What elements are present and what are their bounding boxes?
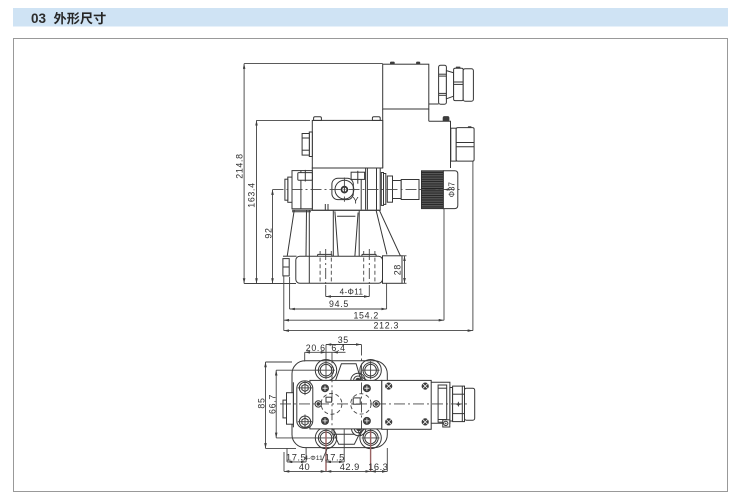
svg-text:20.6: 20.6 <box>306 343 326 353</box>
svg-text:163.4: 163.4 <box>247 182 257 208</box>
svg-text:16.3: 16.3 <box>368 462 388 472</box>
svg-text:40: 40 <box>299 462 310 472</box>
svg-text:66.7: 66.7 <box>267 394 277 414</box>
svg-text:42.9: 42.9 <box>340 462 360 472</box>
svg-text:85: 85 <box>256 397 266 408</box>
svg-text:6.4: 6.4 <box>331 343 345 353</box>
svg-text:Y: Y <box>353 196 359 206</box>
svg-text:17.5: 17.5 <box>325 452 345 462</box>
svg-text:212.3: 212.3 <box>374 321 400 331</box>
svg-text:03: 03 <box>31 11 47 26</box>
svg-text:154.2: 154.2 <box>353 310 379 320</box>
svg-text:94.5: 94.5 <box>329 299 349 309</box>
svg-text:4-Φ11: 4-Φ11 <box>340 287 364 296</box>
svg-text:17.5: 17.5 <box>286 452 306 462</box>
svg-text:28: 28 <box>392 264 402 275</box>
svg-text:92: 92 <box>264 227 274 238</box>
svg-text:214.8: 214.8 <box>234 153 244 179</box>
